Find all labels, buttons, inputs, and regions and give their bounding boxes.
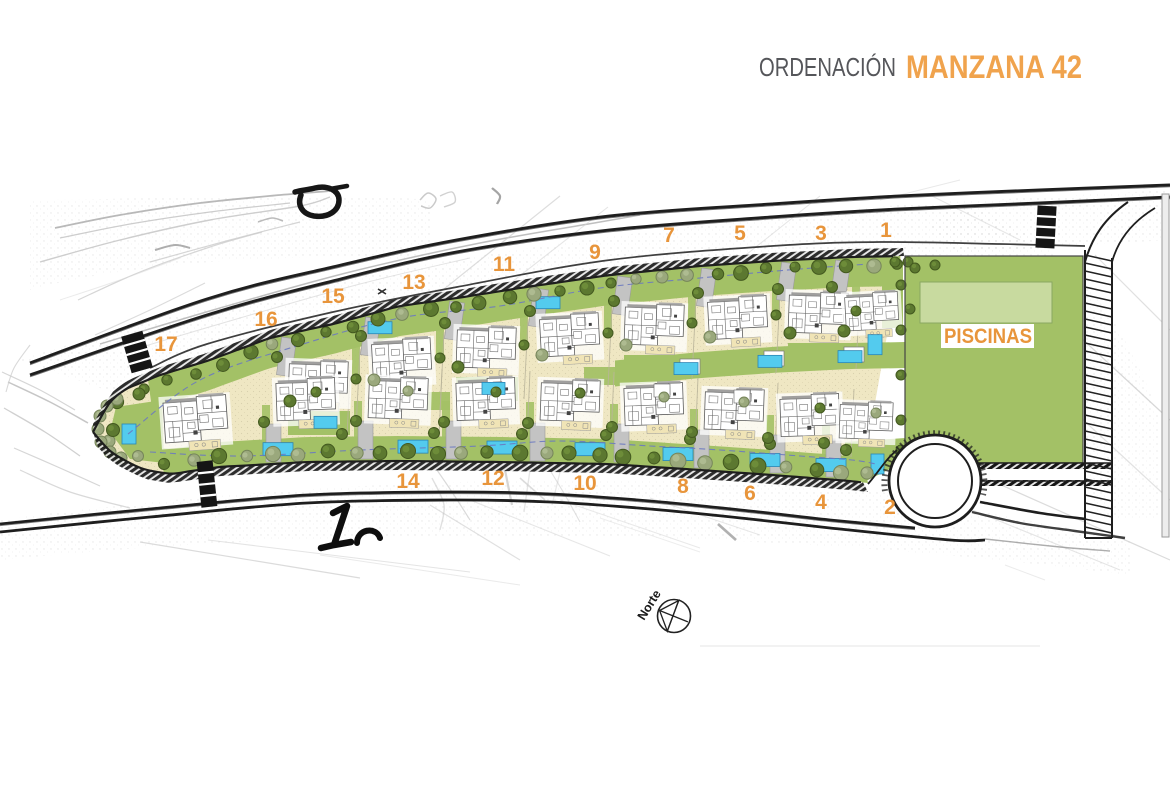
svg-text:14: 14 [396,470,420,493]
svg-text:8: 8 [677,475,689,498]
svg-text:9: 9 [589,241,601,264]
svg-text:3: 3 [815,222,827,245]
svg-text:MANZANA 42: MANZANA 42 [906,49,1082,85]
svg-text:5: 5 [734,222,746,245]
svg-text:2: 2 [884,496,896,519]
svg-text:15: 15 [321,285,345,308]
svg-text:ORDENACIÓN: ORDENACIÓN [759,52,896,82]
svg-text:7: 7 [663,224,675,247]
svg-text:17: 17 [154,333,177,356]
svg-text:10: 10 [573,472,596,495]
svg-text:1: 1 [880,219,892,242]
svg-text:6: 6 [744,482,756,505]
svg-text:PISCINAS: PISCINAS [944,325,1032,348]
svg-text:12: 12 [481,467,504,490]
svg-text:11: 11 [493,253,516,276]
svg-text:13: 13 [402,271,425,294]
svg-text:16: 16 [254,308,277,331]
svg-text:4: 4 [815,491,827,514]
